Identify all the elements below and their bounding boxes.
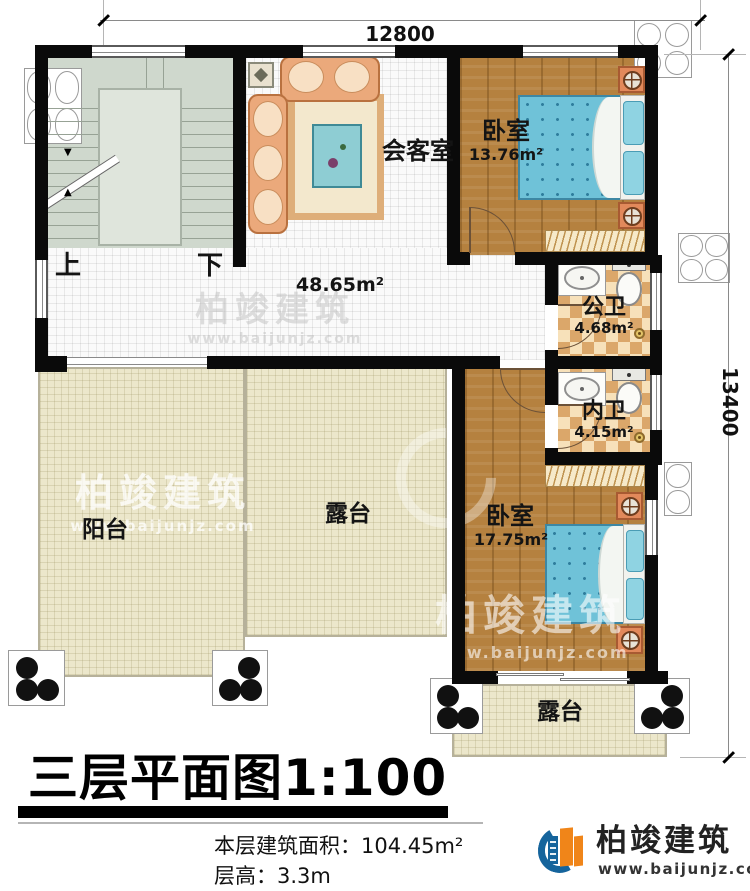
window-left xyxy=(35,260,48,318)
stair-treads-right xyxy=(182,108,233,248)
plan-title: 三层平面图1:100 xyxy=(28,738,447,810)
ac-unit xyxy=(678,233,730,283)
floor-height-value: 3.3m xyxy=(277,864,331,888)
bath-sink xyxy=(564,266,600,290)
wall-bedroom-bottom-left xyxy=(452,356,465,684)
window-top-3 xyxy=(523,45,618,58)
wall-bedroom-top-bottom xyxy=(447,252,470,265)
floor-plan-page: 12800 13400 ▼ ▲ xyxy=(0,0,750,891)
ac-fan xyxy=(680,235,703,257)
label-hall-area: 48.65m² xyxy=(280,275,400,296)
coffee-table xyxy=(312,124,362,188)
plant xyxy=(16,679,38,701)
window-bedroom-bottom xyxy=(645,500,658,555)
bed-sheet-fold xyxy=(598,526,623,622)
label-bedroom-bottom-area: 17.75m² xyxy=(466,531,556,549)
plant xyxy=(457,707,479,729)
nightstand-knob xyxy=(623,71,642,90)
floor-area-label: 本层建筑面积： xyxy=(214,834,361,858)
plan-scale: 1:100 xyxy=(283,749,447,807)
wall-bedroom-bottom-right xyxy=(645,455,658,500)
table-decor xyxy=(328,158,338,168)
floor-area-line: 本层建筑面积：104.45m² xyxy=(214,830,463,860)
bed-pillow xyxy=(626,530,644,572)
wall-bedroom-bottom-right xyxy=(645,555,658,684)
label-terrace-left: 露台 xyxy=(316,502,380,527)
wall-stair-right xyxy=(233,50,246,267)
nightstand xyxy=(616,626,643,654)
logo-building-orange xyxy=(560,827,573,866)
wall-bath-left xyxy=(545,258,558,305)
nightstand xyxy=(618,66,645,93)
logo-building-orange-2 xyxy=(574,836,583,867)
label-bedroom-bottom: 卧室 xyxy=(474,503,546,529)
label-bedroom-top-area: 13.76m² xyxy=(462,146,550,164)
plan-title-text: 三层平面图 xyxy=(28,749,283,807)
sofa-cushion xyxy=(253,101,283,137)
table-decor xyxy=(340,144,346,150)
window-top-1 xyxy=(92,45,185,58)
bedroom-top-wardrobe xyxy=(545,230,645,252)
wall-bath-right xyxy=(650,330,662,375)
ac-unit xyxy=(664,462,692,516)
stair-arrow-up: ▲ xyxy=(64,188,72,198)
sliding-door-terrace xyxy=(496,673,564,676)
wall-lamp xyxy=(248,62,274,88)
dim-line-top xyxy=(100,20,705,21)
nightstand xyxy=(618,202,645,229)
label-public-bath-area: 4.68m² xyxy=(560,320,648,337)
label-inner-bath-area: 4.15m² xyxy=(560,424,648,441)
window-top-2 xyxy=(303,45,395,58)
stair-arrow-down: ▼ xyxy=(64,148,72,158)
label-bedroom-top: 卧室 xyxy=(470,118,542,144)
dim-ext-line-right xyxy=(700,0,701,50)
ac-fan xyxy=(637,23,662,48)
nightstand-knob xyxy=(623,207,642,226)
title-underline-bar xyxy=(18,806,448,818)
bed-pillow xyxy=(623,101,644,145)
planter xyxy=(634,678,690,734)
window-public-bath xyxy=(650,273,662,330)
plant xyxy=(641,707,663,729)
plant xyxy=(437,707,459,729)
brand-name: 柏竣建筑 xyxy=(596,826,732,857)
floor-height-line: 层高：3.3m xyxy=(214,860,331,890)
toilet-tank xyxy=(612,368,646,381)
floor-area-value: 104.45m² xyxy=(361,834,463,858)
wall-inner-bath-bottom xyxy=(545,452,660,465)
bed-pillow xyxy=(626,578,644,620)
plant xyxy=(661,685,683,707)
ac-fan xyxy=(666,490,689,513)
wall-bedroom-top-bottom xyxy=(515,252,658,265)
planter xyxy=(212,650,268,706)
stair-landing-line xyxy=(146,58,164,88)
ac-fan xyxy=(705,235,728,257)
plant xyxy=(662,707,684,729)
dim-ext-line-left xyxy=(103,0,104,45)
plant xyxy=(437,685,459,707)
nightstand-knob xyxy=(621,631,640,650)
bed-pillow xyxy=(623,151,644,195)
ac-fan xyxy=(665,23,690,48)
dim-ext-line-bottom xyxy=(680,757,746,758)
wall-bath-right xyxy=(650,255,662,273)
title-underline-thin xyxy=(18,822,483,824)
wall-bedroom-top-right xyxy=(645,45,658,255)
sofa-cushion xyxy=(253,189,283,225)
sofa-cushion xyxy=(334,61,370,93)
label-inner-bath: 内卫 xyxy=(560,400,648,424)
ac-fan xyxy=(55,71,80,103)
sliding-door-terrace xyxy=(560,678,630,681)
label-stairs-down: 下 xyxy=(192,252,228,281)
label-stairs-up: 上 xyxy=(50,252,86,281)
window-inner-bath xyxy=(650,375,662,430)
sofa-cushion xyxy=(253,145,283,181)
brand-logo-icon xyxy=(536,820,590,878)
label-terrace-bottom: 露台 xyxy=(528,700,592,725)
plant xyxy=(238,657,260,679)
dim-right-value: 13400 xyxy=(718,367,742,427)
bath-sink xyxy=(564,377,600,401)
sofa-cushion xyxy=(288,61,324,93)
plant xyxy=(240,679,262,701)
hall-floor xyxy=(48,248,545,360)
dim-ext-line-top xyxy=(664,54,746,55)
wall-bedroom-bottom-south xyxy=(627,671,668,684)
bedroom-bottom-wardrobe xyxy=(545,465,645,487)
label-meeting-room: 会客室 xyxy=(366,138,470,164)
plant xyxy=(37,679,59,701)
floor-height-label: 层高： xyxy=(214,864,277,888)
ac-fan xyxy=(666,464,689,487)
brand-website: www.baijunjz.com xyxy=(598,862,750,877)
wall-left xyxy=(35,45,48,260)
wall-bedroom-bottom-south xyxy=(452,671,498,684)
nightstand-knob xyxy=(621,497,640,516)
wall-balcony-corner xyxy=(35,356,67,372)
brand-logo: 柏竣建筑 www.baijunjz.com xyxy=(536,818,750,882)
nightstand xyxy=(616,492,643,520)
planter xyxy=(430,678,483,734)
logo-building-blue xyxy=(548,836,558,864)
bed-sheet-fold xyxy=(592,97,620,198)
balcony-floor xyxy=(38,367,245,677)
wall-baths-divider xyxy=(545,356,658,369)
plant xyxy=(219,679,241,701)
ac-fan xyxy=(705,259,728,281)
dim-top-value: 12800 xyxy=(300,22,500,46)
plant xyxy=(16,657,38,679)
label-public-bath: 公卫 xyxy=(560,296,648,320)
planter xyxy=(8,650,65,706)
balcony-opening-rail xyxy=(67,357,207,365)
ac-fan xyxy=(680,259,703,281)
label-balcony: 阳台 xyxy=(73,518,137,543)
